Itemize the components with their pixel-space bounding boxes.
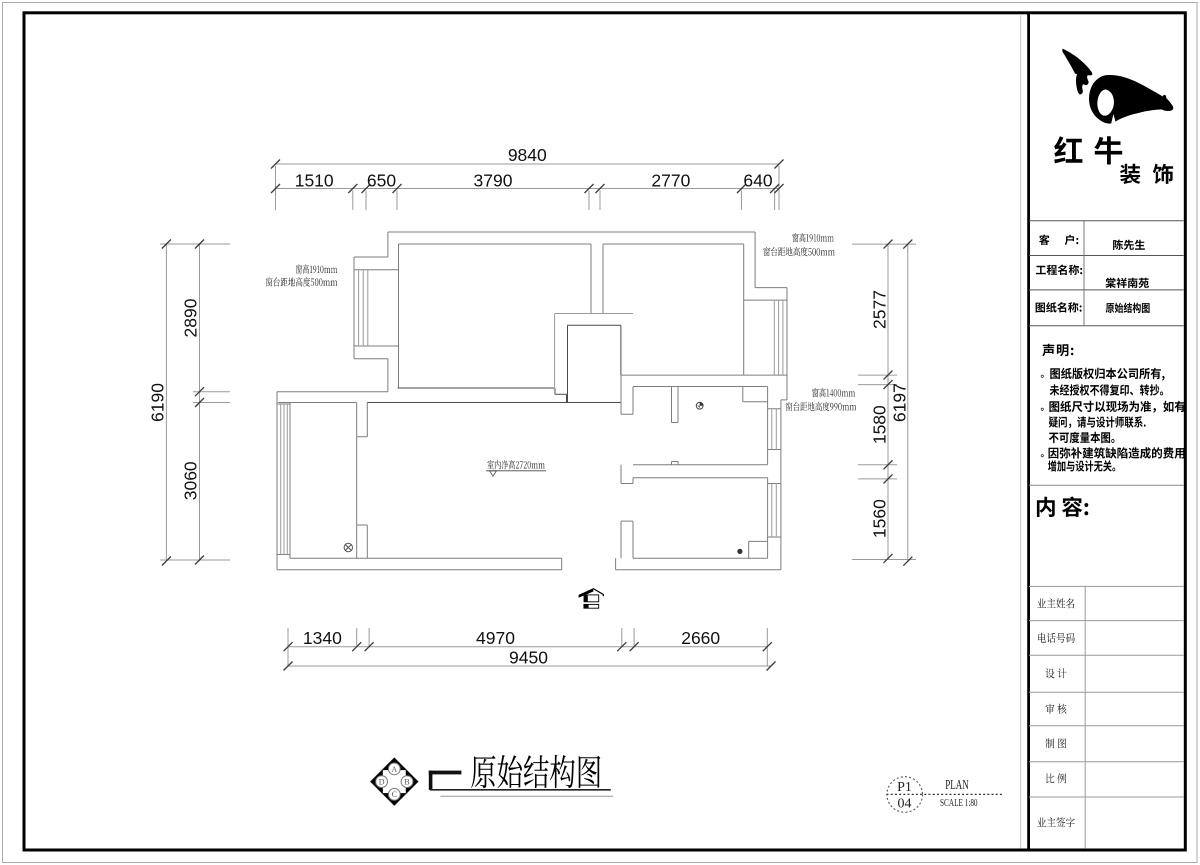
svg-text:2890: 2890: [181, 298, 201, 337]
svg-text:P1: P1: [897, 780, 912, 795]
svg-text:1580: 1580: [870, 405, 890, 444]
svg-text:9450: 9450: [509, 648, 548, 668]
svg-text:2660: 2660: [681, 628, 720, 648]
svg-text:A: A: [391, 765, 397, 774]
svg-text:SCALE 1:80: SCALE 1:80: [940, 798, 978, 809]
svg-text:2577: 2577: [870, 290, 890, 329]
svg-text:3060: 3060: [181, 461, 201, 500]
svg-text:C: C: [392, 790, 397, 799]
svg-text:2770: 2770: [651, 171, 690, 191]
svg-text:9840: 9840: [508, 145, 547, 165]
svg-text:3790: 3790: [474, 171, 513, 191]
svg-text:1560: 1560: [870, 499, 890, 538]
svg-text:4970: 4970: [476, 628, 515, 648]
svg-text:04: 04: [898, 797, 912, 812]
svg-text:B: B: [404, 778, 409, 787]
svg-text:650: 650: [367, 171, 396, 191]
svg-text:1510: 1510: [295, 171, 334, 191]
svg-text:6190: 6190: [148, 383, 168, 422]
svg-text:1340: 1340: [303, 628, 342, 648]
svg-text:640: 640: [743, 171, 772, 191]
svg-text:D: D: [379, 778, 385, 787]
svg-text:6197: 6197: [890, 383, 910, 422]
svg-text:PLAN: PLAN: [945, 778, 969, 793]
